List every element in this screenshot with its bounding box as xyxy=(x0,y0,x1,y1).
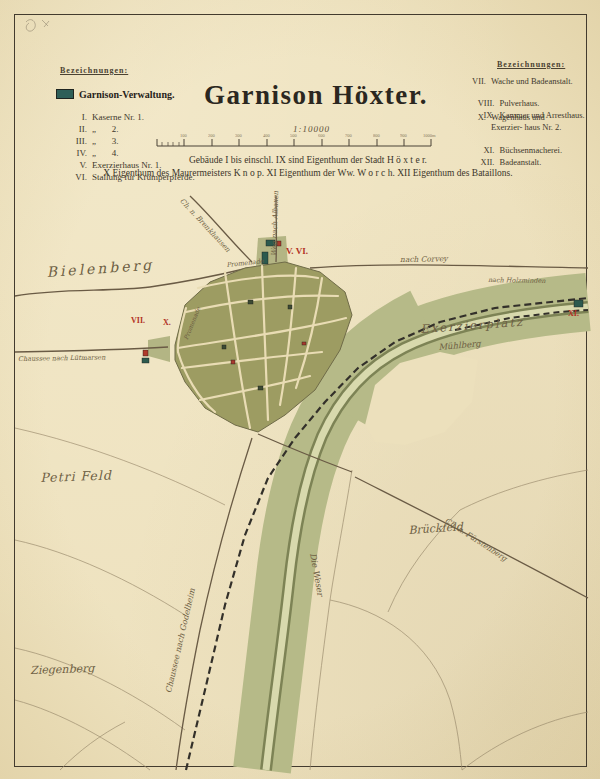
legend-left-header: Bezeichnungen: xyxy=(60,66,128,75)
garrison-swatch-label: Garnison-Verwaltung. xyxy=(79,89,174,100)
scale-tick-label: 400 xyxy=(263,133,270,138)
scale-tick-label: 800 xyxy=(373,133,380,138)
legend-item: VII.Wache und Badeanstalt. xyxy=(460,76,582,86)
map-mark-v-vi: V. VI. xyxy=(286,246,308,256)
map-label-ziegenberg: Ziegenberg xyxy=(30,662,95,677)
building-knop-green xyxy=(142,358,149,363)
scale-tick-label: 600 xyxy=(318,133,325,138)
scale-tick-label: 500 xyxy=(290,133,297,138)
scale-tick-label: 700 xyxy=(345,133,352,138)
pencil-mark xyxy=(26,20,49,32)
building-buechsenmacherei xyxy=(574,300,583,307)
town-building-red-2 xyxy=(302,342,306,345)
map-label-nach-holzminden: nach Holzminden xyxy=(488,276,546,285)
town-building-green-4 xyxy=(258,386,263,390)
map-mark-x: X. xyxy=(163,318,171,327)
ownership-note-1: Gebäude I bis einschl. IX sind Eigenthum… xyxy=(189,155,427,165)
map-label-chaussee-luetmarsen: Chaussee nach Lütmarsen xyxy=(18,353,105,363)
town-building-red-1 xyxy=(231,360,235,364)
map-mark-xi: XI. xyxy=(568,309,579,318)
garrison-color-swatch xyxy=(56,89,74,99)
page-title: Garnison Höxter. xyxy=(204,80,428,111)
scale-tick-label: 900 xyxy=(400,133,407,138)
map-sheet: Bezeichnungen: Garnison-Verwaltung. I.Ka… xyxy=(0,0,600,779)
legend-item: X.Wagenhaus und Exerzier- haus Nr. 2. xyxy=(460,112,578,132)
scale-tick-label: 300 xyxy=(235,133,242,138)
legend-right-header: Bezeichnungen: xyxy=(497,60,565,69)
map-mark-vii: VII. xyxy=(131,316,145,325)
town-building-green-1 xyxy=(248,300,253,304)
scale-tick-label: 200 xyxy=(208,133,215,138)
scale-tick-label: 100 xyxy=(180,133,187,138)
legend-item: XII.Badeanstalt. xyxy=(460,147,541,167)
building-knop-red xyxy=(143,350,148,356)
ownership-note-2: X Eigenthum des Maurermeisters K n o p. … xyxy=(103,168,512,178)
town-building-green-3 xyxy=(222,345,226,349)
map-label-petri-feld: Petri Feld xyxy=(40,468,112,485)
legend-swatch-row: Garnison-Verwaltung. xyxy=(56,84,174,102)
map-label-nach-corvey: nach Corvey xyxy=(400,254,448,264)
scale-tick-label: 1000m xyxy=(423,133,436,138)
scale-bar: 100 200 300 400 500 600 700 800 900 1000… xyxy=(155,133,433,151)
town-building-green-2 xyxy=(288,305,292,309)
